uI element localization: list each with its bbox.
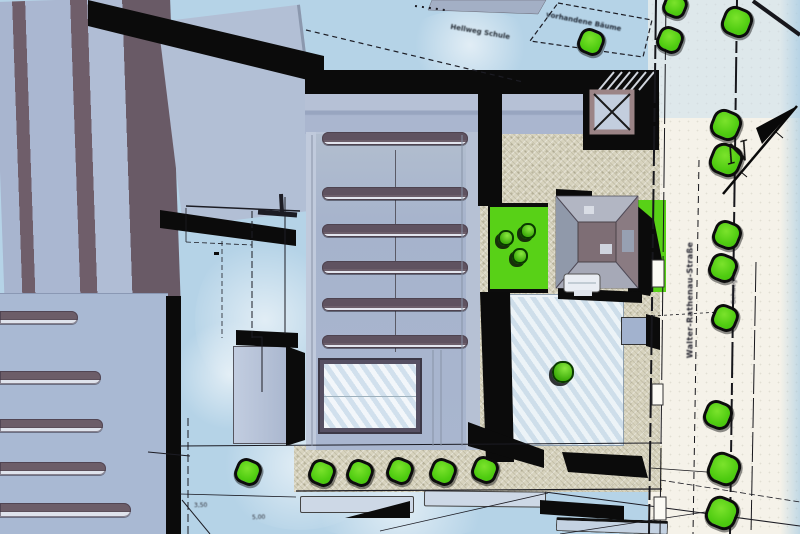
skylight-strip [322, 335, 468, 348]
parking-canopy [556, 517, 668, 534]
dashed-boundary-box [530, 3, 652, 57]
site-plan-canvas: Walter-Rathenau-Straße Gehweg vorhandene… [0, 0, 800, 534]
skylight-strip [322, 224, 468, 237]
parking-canopy [300, 496, 414, 513]
dimension-note: 5,00 [252, 514, 266, 521]
atrium-courtyard [318, 358, 422, 434]
background-mottle [400, 10, 540, 80]
lawn-patch-west [488, 203, 548, 293]
atrium-divider-line [324, 396, 416, 397]
dimension-note: 3,50 [194, 502, 207, 509]
building-main-north-wing [305, 90, 587, 134]
roof-bar [0, 371, 101, 384]
lawn-patch-east [634, 200, 666, 292]
street-surface [648, 0, 800, 534]
tree [574, 25, 608, 59]
skylight-strip [322, 132, 468, 145]
building-southwest [0, 293, 168, 534]
roof-spine-line [395, 150, 396, 352]
building-flat-east [504, 294, 624, 446]
parking-canopy [424, 490, 546, 507]
annotation-dashed-area: vorhandene Bäume [545, 11, 664, 42]
roof-bar [0, 503, 131, 517]
skylight-strip [322, 261, 468, 274]
gravel-path-tree-row [294, 446, 662, 492]
atrium-glass [324, 364, 416, 428]
building-outbuilding [233, 346, 289, 444]
roof-bar [0, 311, 78, 324]
tree [231, 455, 265, 489]
building-hall-west-panel [158, 5, 325, 227]
building-annex [621, 317, 648, 345]
annotation-upper-left: Hellweg Schule [450, 23, 511, 41]
roof-bar [0, 419, 103, 432]
building-top-sliver [428, 0, 546, 14]
roof-bar [0, 462, 106, 475]
building-hall-west [0, 0, 181, 304]
skylight-strip [322, 298, 468, 311]
skylight-strip [322, 187, 468, 200]
